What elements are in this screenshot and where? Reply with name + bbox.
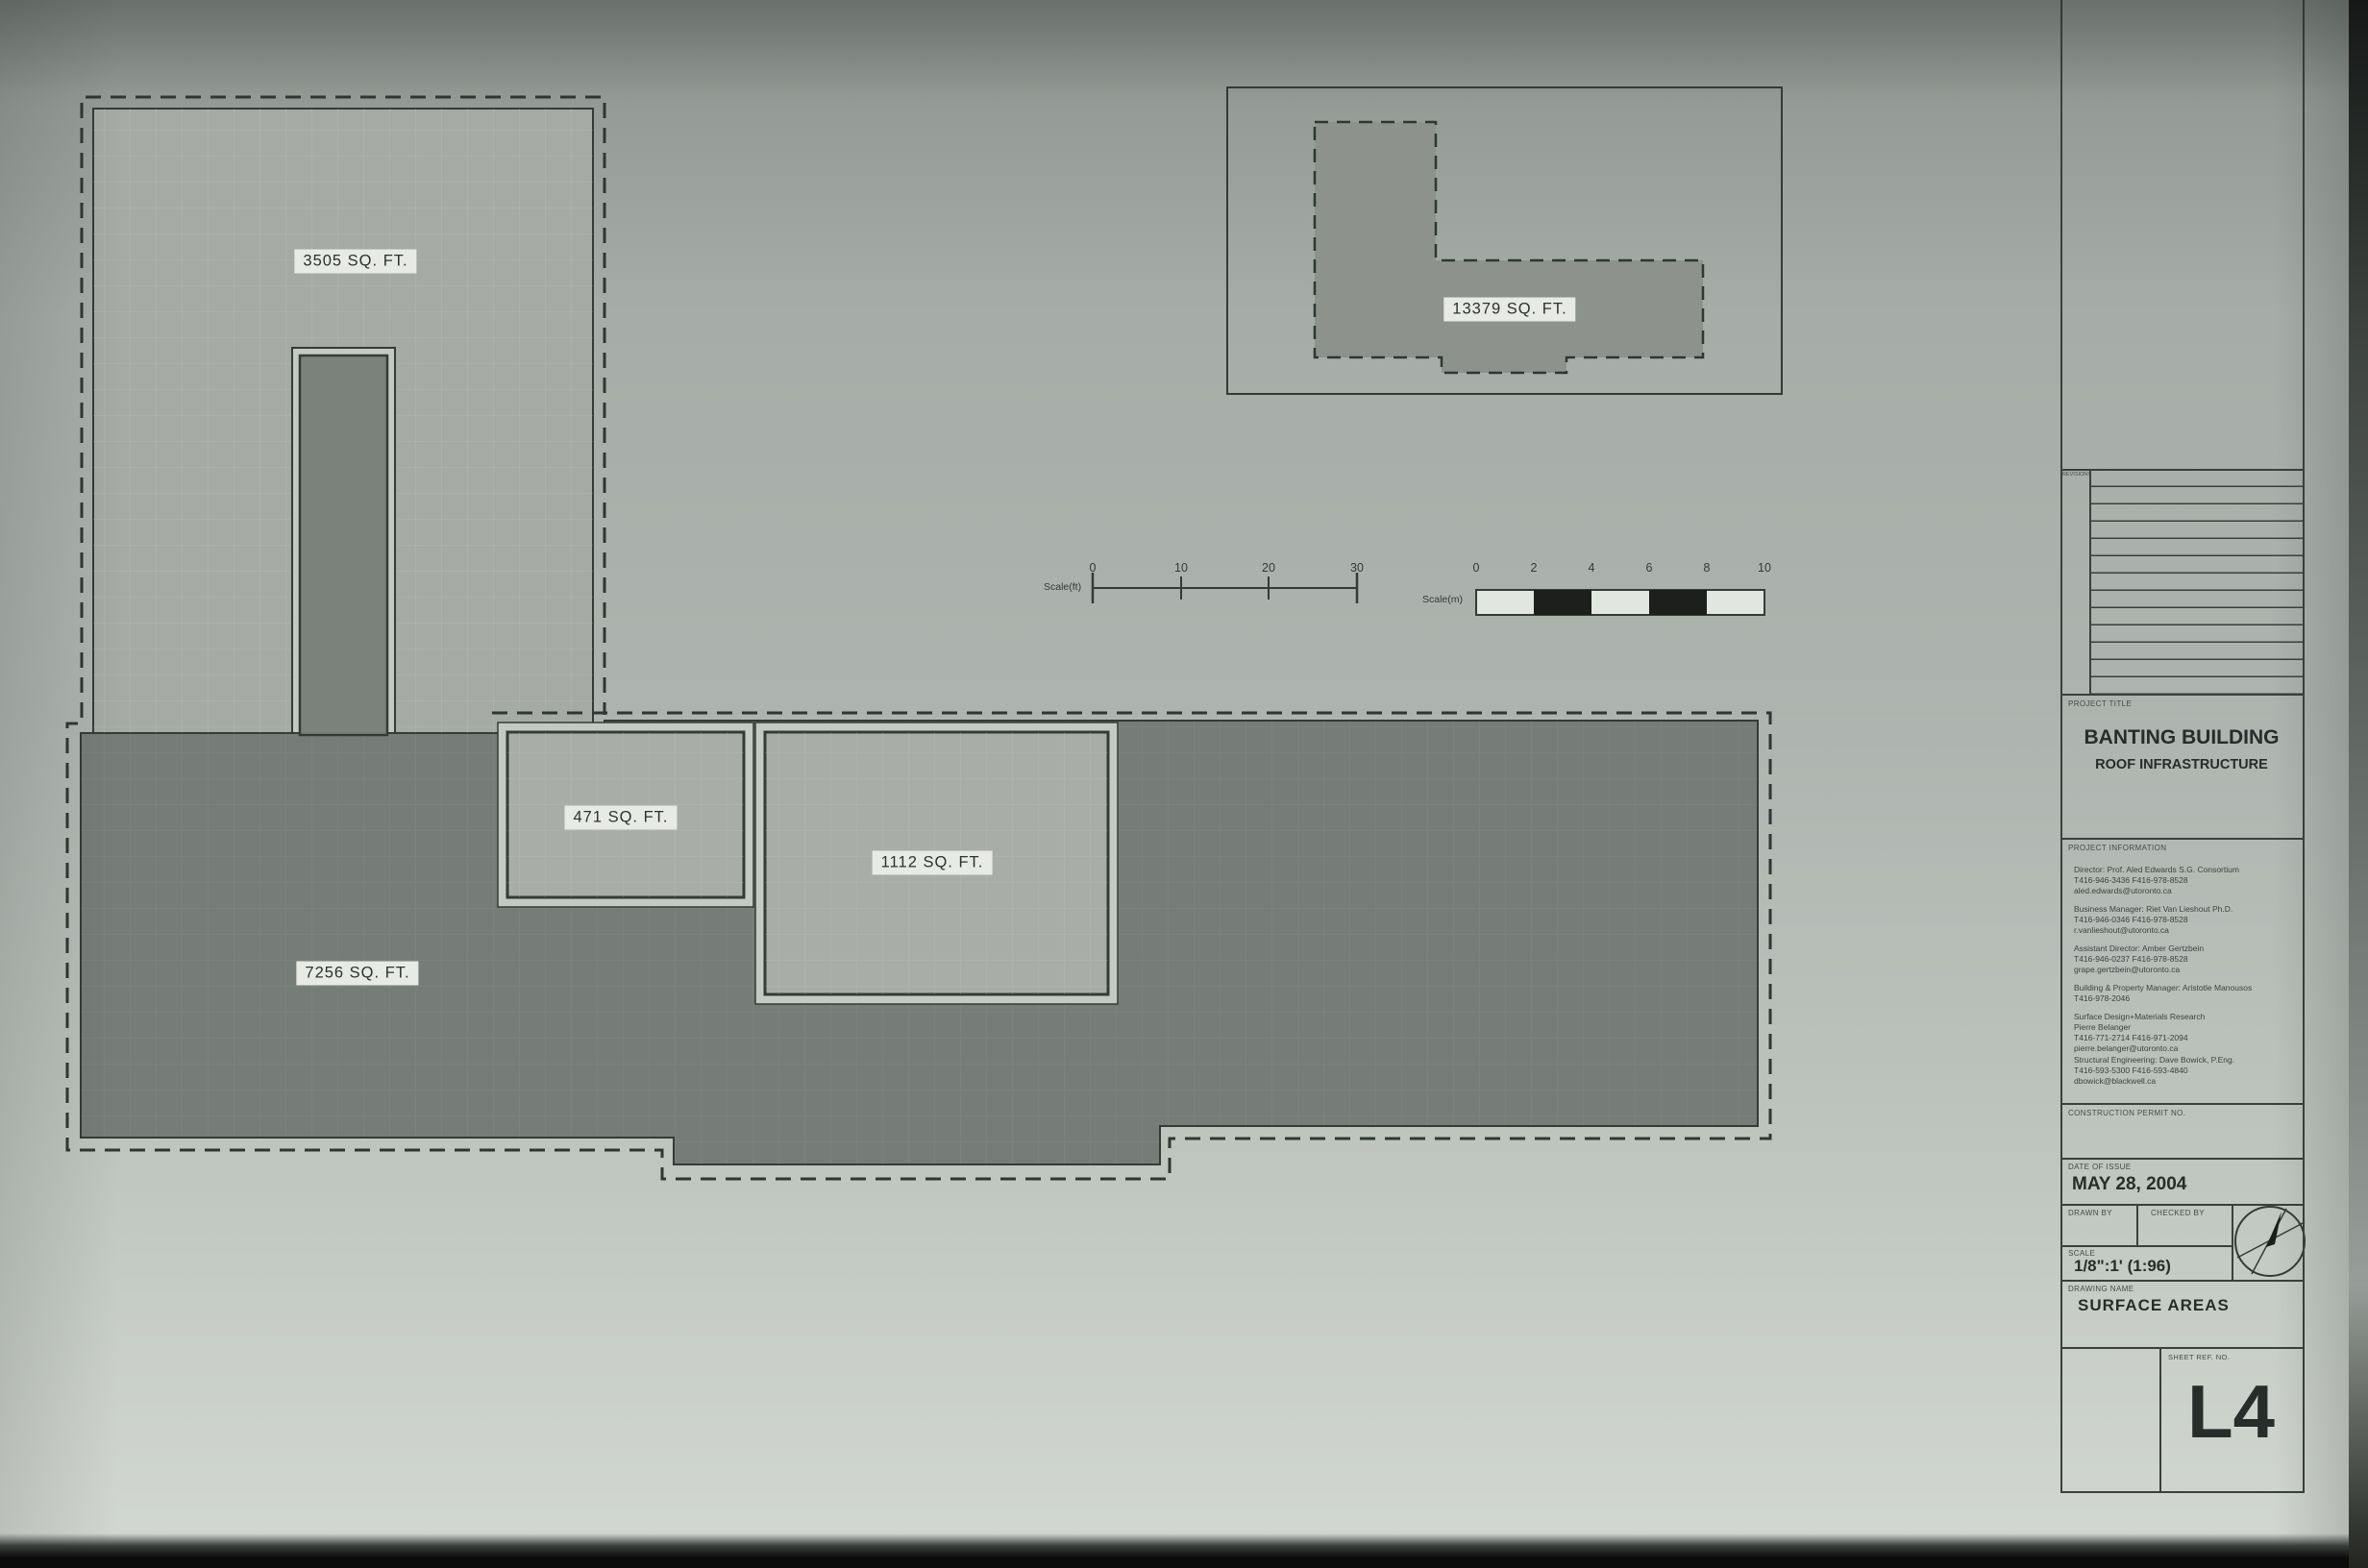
area-label-3505: 3505 SQ. FT. xyxy=(294,250,416,274)
scale-m-tick: 2 xyxy=(1531,561,1538,575)
scale-m-tick: 4 xyxy=(1589,561,1595,575)
construction-permit-label: CONSTRUCTION PERMIT NO. xyxy=(2068,1109,2185,1117)
compass-cell-divider xyxy=(2232,1204,2233,1280)
scale-m-tick: 8 xyxy=(1704,561,1711,575)
scale-m-tick: 6 xyxy=(1646,561,1653,575)
project-title: BANTING BUILDING xyxy=(2060,726,2303,749)
photo-right-edge xyxy=(2349,0,2368,1568)
titleblock-divider xyxy=(2060,1347,2305,1349)
titleblock-bottom-border xyxy=(2060,1491,2305,1493)
area-label-7256: 7256 SQ. FT. xyxy=(296,962,418,986)
contact-entry: Business Manager: Riet Van Lieshout Ph.D… xyxy=(2074,904,2301,936)
drawing-sheet-photo: 3505 SQ. FT. 13379 SQ. FT. 471 SQ. FT. 1… xyxy=(0,0,2368,1568)
scale-m-label: Scale(m) xyxy=(1422,594,1463,605)
scale-m-tick: 0 xyxy=(1473,561,1480,575)
titleblock-divider xyxy=(2060,1245,2232,1247)
project-title-block: BANTING BUILDING ROOF INFRASTRUCTURE xyxy=(2060,726,2303,772)
revisions-table xyxy=(2091,470,2303,695)
contact-entry: Assistant Director: Amber Gertzbein T416… xyxy=(2074,943,2301,975)
contact-entry: Building & Property Manager: Aristotle M… xyxy=(2074,983,2301,1004)
contact-entry: Structural Engineering: Dave Bowick, P.E… xyxy=(2074,1055,2301,1087)
titleblock-divider xyxy=(2060,1158,2305,1160)
project-subtitle: ROOF INFRASTRUCTURE xyxy=(2060,757,2303,772)
date-of-issue-value: MAY 28, 2004 xyxy=(2072,1174,2186,1195)
date-of-issue-label: DATE OF ISSUE xyxy=(2068,1163,2132,1171)
scale-ft-label: Scale(ft) xyxy=(1044,581,1081,593)
sheet-ref-label: SHEET REF. NO. xyxy=(2168,1353,2230,1361)
area-label-13379: 13379 SQ. FT. xyxy=(1443,298,1575,322)
titleblock-divider xyxy=(2060,1103,2305,1105)
area-label-471: 471 SQ. FT. xyxy=(564,806,677,830)
tower-strip-fill xyxy=(300,355,387,735)
titleblock-divider xyxy=(2060,1204,2305,1206)
titleblock-right-border xyxy=(2303,0,2305,1493)
region-13379-fill xyxy=(1315,122,1703,373)
area-label-1112: 1112 SQ. FT. xyxy=(873,851,993,875)
roof-plan-canvas xyxy=(0,0,2368,1568)
north-arrow-icon xyxy=(2235,1207,2305,1276)
sheet-ref-cell: L4 xyxy=(2159,1368,2303,1456)
drawing-name-label: DRAWING NAME xyxy=(2068,1285,2134,1293)
checked-by-label: CHECKED BY xyxy=(2151,1209,2205,1217)
scale-ft-tick: 0 xyxy=(1090,561,1097,575)
contact-entry: Surface Design+Materials Research Pierre… xyxy=(2074,1012,2301,1054)
photo-bottom-edge xyxy=(0,1533,2368,1568)
scale-ft-tick: 10 xyxy=(1174,561,1188,575)
contact-entry: Director: Prof. Aled Edwards S.G. Consor… xyxy=(2074,865,2301,896)
scale-m-tick: 10 xyxy=(1758,561,1771,575)
project-information-label: PROJECT INFORMATION xyxy=(2068,844,2166,852)
scale-ft-tick: 30 xyxy=(1350,561,1364,575)
titleblock-divider xyxy=(2060,838,2305,840)
sheet-ref-value: L4 xyxy=(2187,1369,2275,1454)
drawn-by-label: DRAWN BY xyxy=(2068,1209,2112,1217)
drawing-name-value: SURFACE AREAS xyxy=(2078,1296,2230,1315)
project-title-label: PROJECT TITLE xyxy=(2068,699,2132,708)
drawnby-checkedby-divider xyxy=(2136,1204,2138,1245)
scale-bar-ft xyxy=(1093,573,1357,603)
revisions-label: REVISIONS xyxy=(2062,472,2091,478)
scale-value: 1/8":1' (1:96) xyxy=(2074,1257,2171,1276)
titleblock-divider xyxy=(2060,1280,2305,1282)
scale-bar-m xyxy=(1476,590,1764,615)
scale-ft-tick: 20 xyxy=(1262,561,1275,575)
